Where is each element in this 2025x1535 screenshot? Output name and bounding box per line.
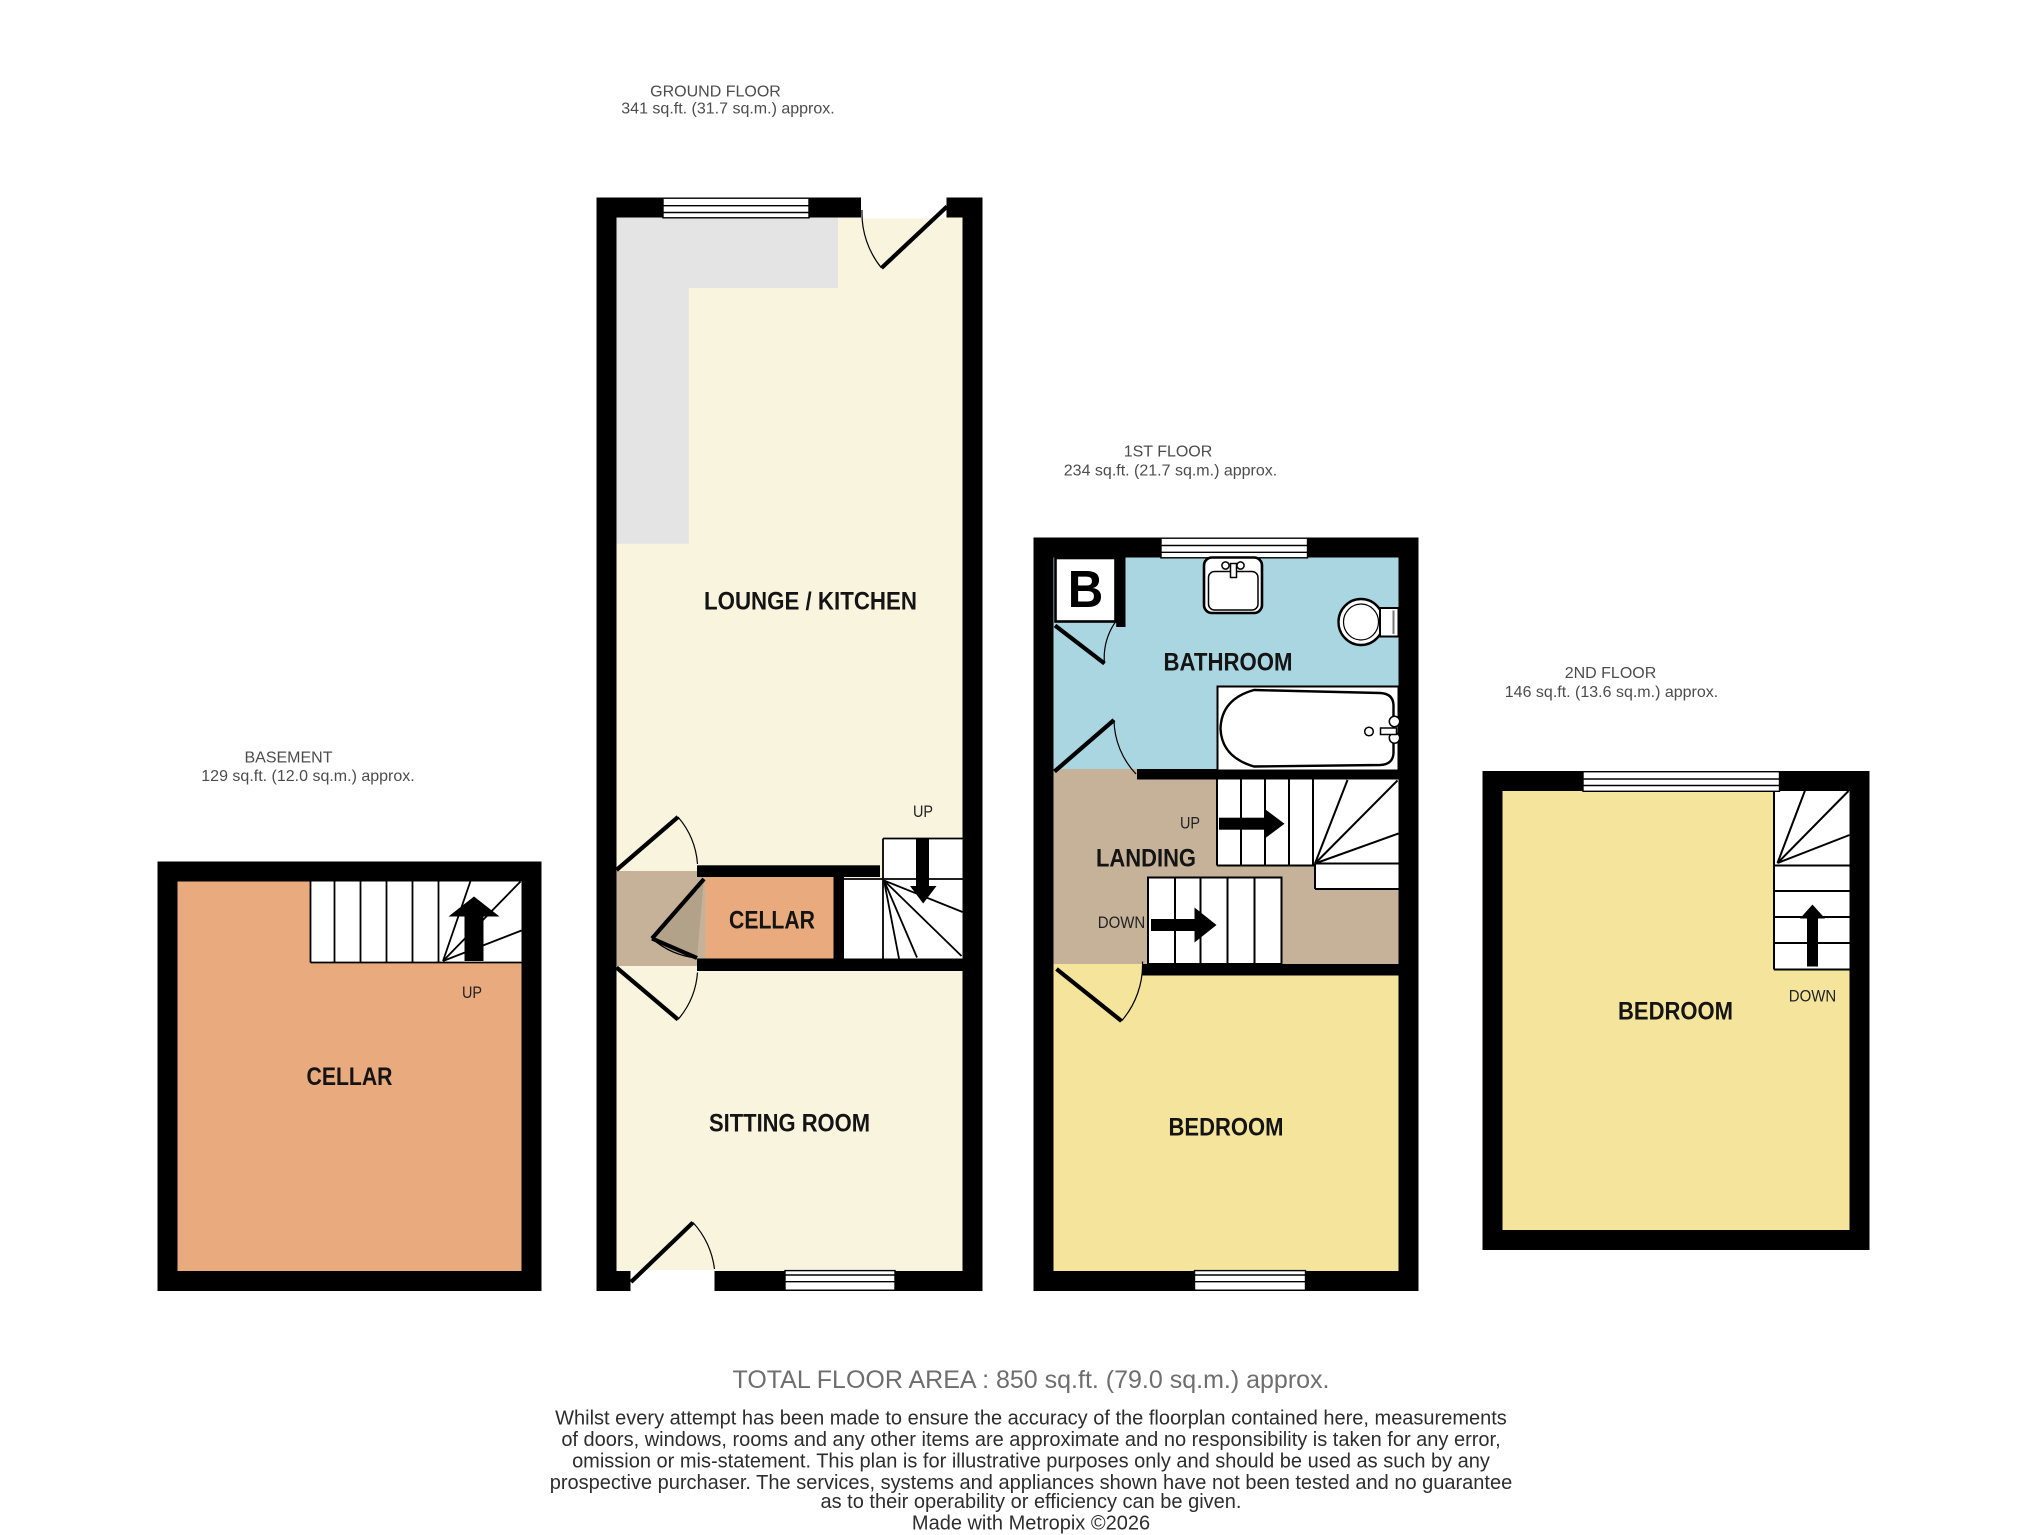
svg-text:BATHROOM: BATHROOM <box>1164 649 1293 677</box>
svg-text:UP: UP <box>913 802 933 821</box>
svg-text:234 sq.ft. (21.7 sq.m.) approx: 234 sq.ft. (21.7 sq.m.) approx. <box>1064 462 1277 479</box>
svg-text:2ND FLOOR: 2ND FLOOR <box>1565 665 1657 682</box>
svg-text:LOUNGE / KITCHEN: LOUNGE / KITCHEN <box>704 588 917 616</box>
svg-text:CELLAR: CELLAR <box>729 907 815 935</box>
svg-text:BASEMENT: BASEMENT <box>244 750 332 767</box>
svg-text:DOWN: DOWN <box>1789 987 1837 1006</box>
svg-text:SITTING ROOM: SITTING ROOM <box>709 1110 870 1138</box>
svg-text:1ST FLOOR: 1ST FLOOR <box>1124 444 1213 461</box>
svg-text:Made with Metropix ©2026: Made with Metropix ©2026 <box>912 1513 1150 1535</box>
svg-text:Whilst every attempt has been: Whilst every attempt has been made to en… <box>555 1408 1507 1430</box>
svg-text:341 sq.ft. (31.7 sq.m.) approx: 341 sq.ft. (31.7 sq.m.) approx. <box>621 101 834 118</box>
svg-text:146 sq.ft. (13.6 sq.m.) approx: 146 sq.ft. (13.6 sq.m.) approx. <box>1505 684 1718 701</box>
svg-text:as to their operability or eff: as to their operability or efficiency ca… <box>821 1491 1242 1513</box>
svg-text:DOWN: DOWN <box>1098 913 1146 932</box>
svg-text:of doors, windows, rooms and a: of doors, windows, rooms and any other i… <box>561 1429 1500 1451</box>
svg-text:BEDROOM: BEDROOM <box>1618 998 1733 1026</box>
svg-text:B: B <box>1068 561 1104 619</box>
svg-text:BEDROOM: BEDROOM <box>1169 1114 1284 1142</box>
svg-text:UP: UP <box>462 983 482 1002</box>
svg-text:GROUND FLOOR: GROUND FLOOR <box>650 84 781 101</box>
svg-text:omission or mis-statement. Thi: omission or mis-statement. This plan is … <box>572 1451 1490 1473</box>
svg-text:LANDING: LANDING <box>1096 845 1196 873</box>
svg-text:UP: UP <box>1180 814 1200 833</box>
svg-text:CELLAR: CELLAR <box>307 1063 393 1091</box>
svg-text:129 sq.ft. (12.0 sq.m.) approx: 129 sq.ft. (12.0 sq.m.) approx. <box>201 768 414 785</box>
svg-text:TOTAL FLOOR AREA : 850 sq.ft.: TOTAL FLOOR AREA : 850 sq.ft. (79.0 sq.m… <box>733 1366 1330 1394</box>
